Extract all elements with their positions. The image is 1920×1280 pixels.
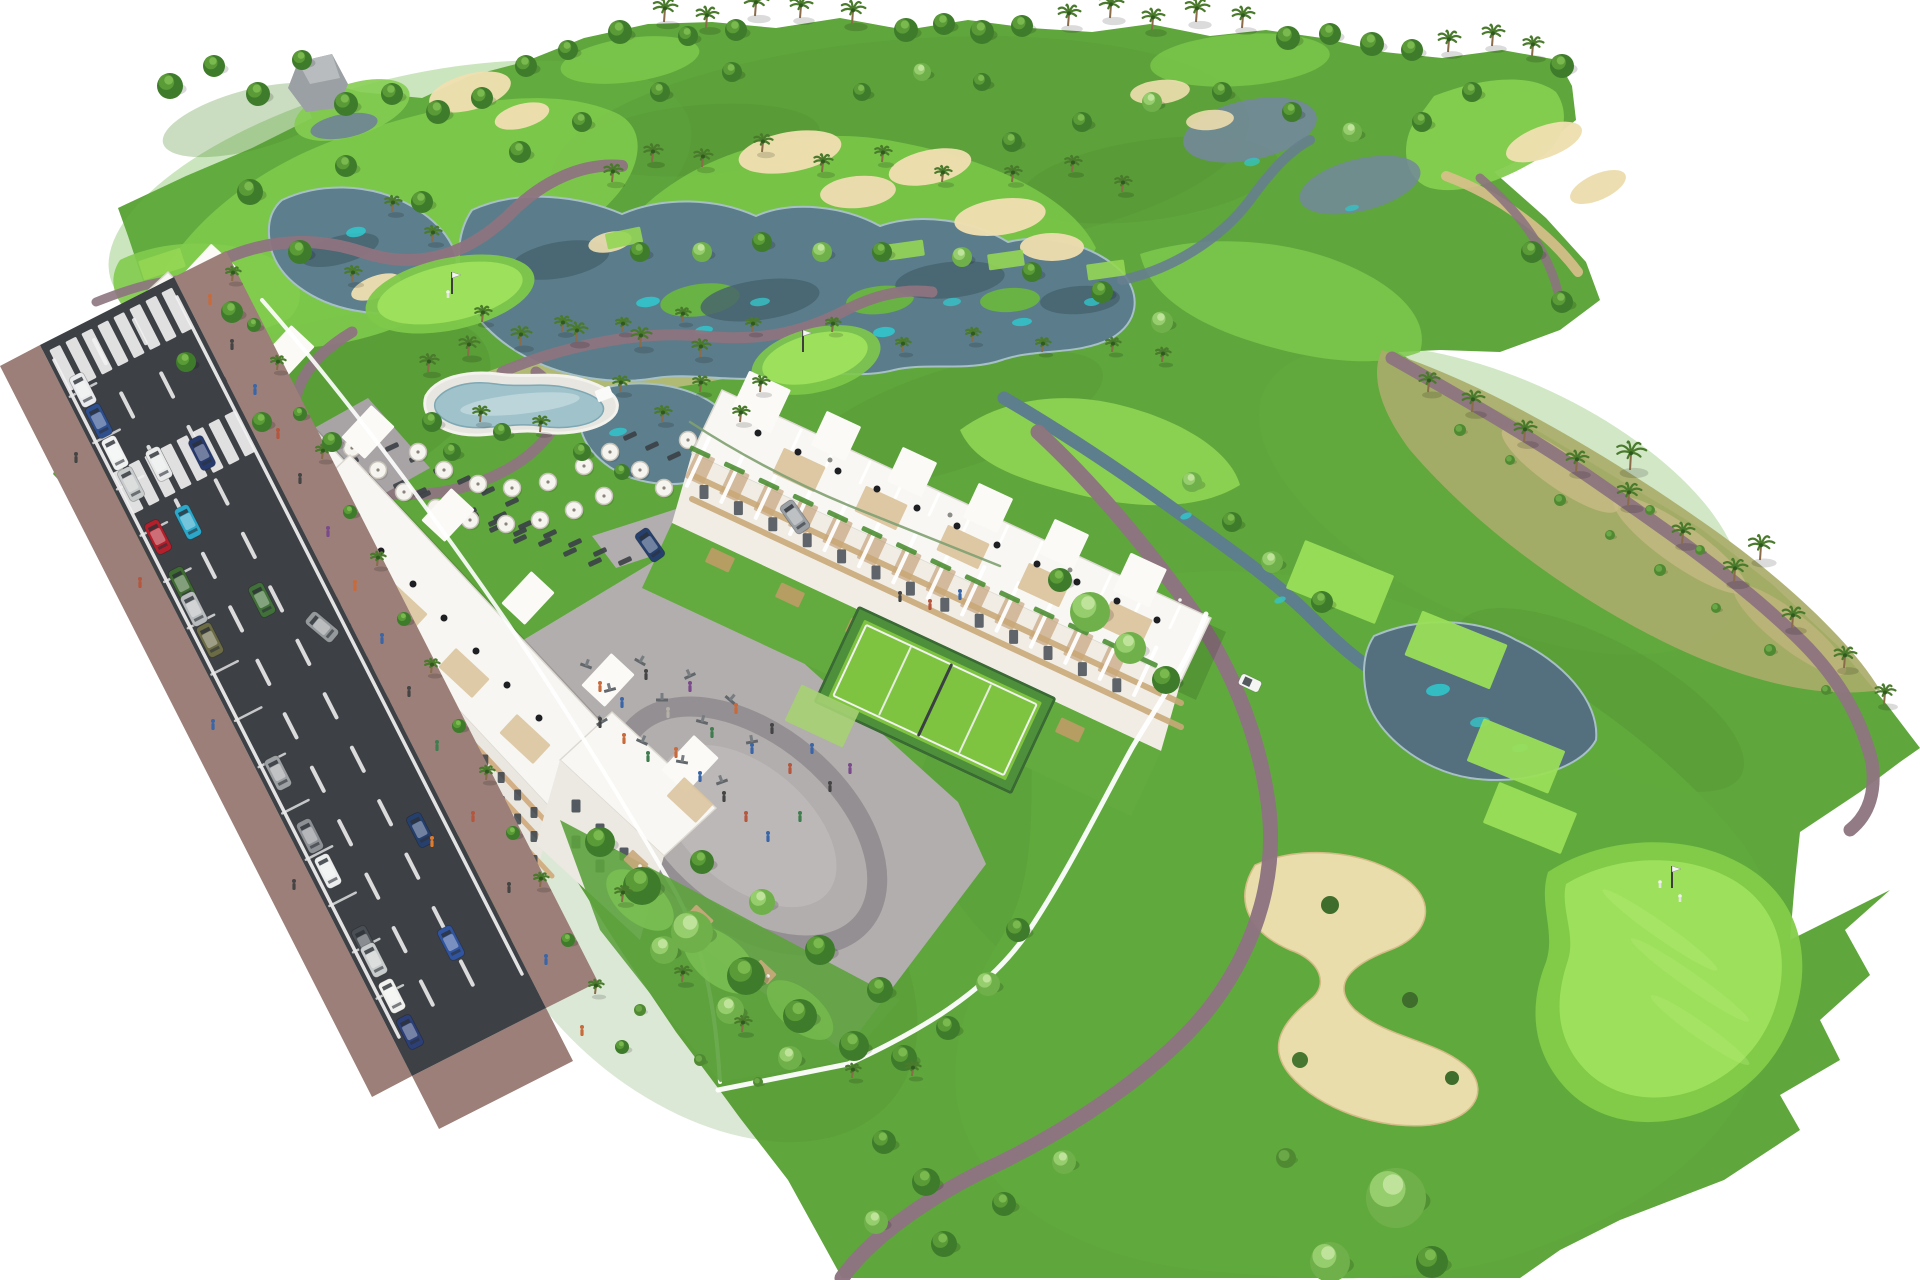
scene-canvas <box>0 0 1920 1280</box>
masterplan-render <box>0 0 1920 1280</box>
